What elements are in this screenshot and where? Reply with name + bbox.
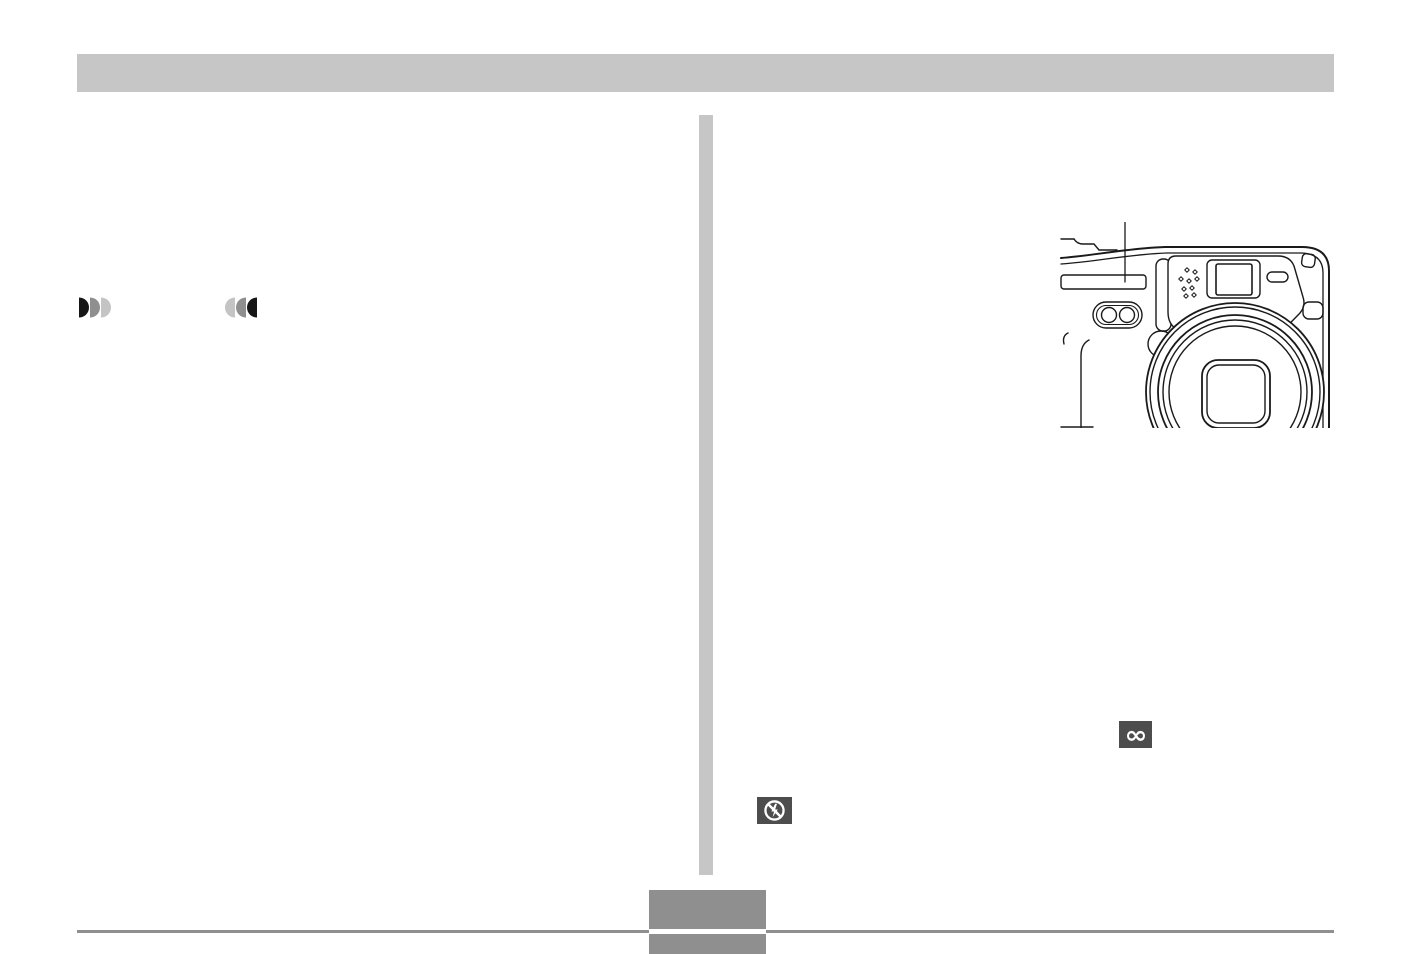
lamp-capsule xyxy=(1093,302,1142,328)
flash-off-icon xyxy=(757,797,792,824)
column-divider xyxy=(699,115,713,875)
flash-off-glyph xyxy=(762,798,787,823)
header-bar xyxy=(77,54,1334,92)
side-tab xyxy=(1303,302,1323,319)
camera-illustration xyxy=(1060,222,1334,428)
page-number-box-secondary xyxy=(649,934,766,954)
infinity-focus-icon: ∞ xyxy=(1119,721,1152,748)
wide-angle-zoom-icon xyxy=(225,297,258,318)
lens-aperture xyxy=(1202,360,1270,428)
strap-lug xyxy=(1301,253,1316,268)
footer-rule-right xyxy=(766,930,1334,933)
camera-grip-edge xyxy=(1061,333,1093,428)
infinity-glyph: ∞ xyxy=(1124,725,1147,745)
page-number-box xyxy=(649,890,766,929)
flash-window xyxy=(1061,275,1146,289)
manual-page: ∞ xyxy=(0,0,1410,954)
camera-top-plate xyxy=(1061,239,1117,250)
telephoto-zoom-icon xyxy=(78,297,111,318)
footer-rule-left xyxy=(77,930,649,933)
